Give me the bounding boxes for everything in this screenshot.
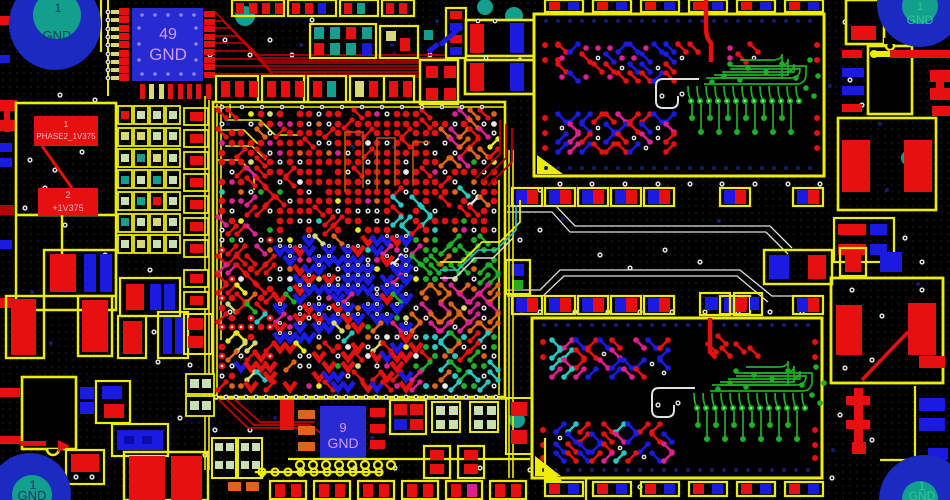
svg-text:49: 49 bbox=[159, 26, 177, 43]
svg-text:1: 1 bbox=[64, 120, 69, 129]
svg-text:GND: GND bbox=[907, 13, 934, 27]
svg-text:GND: GND bbox=[909, 489, 936, 500]
svg-text:GND: GND bbox=[327, 435, 358, 451]
svg-text:9: 9 bbox=[339, 420, 346, 435]
svg-text:1: 1 bbox=[55, 1, 62, 15]
svg-text:2: 2 bbox=[65, 190, 70, 200]
svg-text:GND: GND bbox=[18, 488, 47, 500]
svg-text:PHASE2_1V375: PHASE2_1V375 bbox=[36, 132, 96, 141]
svg-text:+1V375: +1V375 bbox=[52, 203, 83, 213]
svg-text:GND: GND bbox=[43, 28, 72, 43]
svg-text:GND: GND bbox=[149, 45, 187, 64]
svg-text:1: 1 bbox=[917, 1, 923, 13]
